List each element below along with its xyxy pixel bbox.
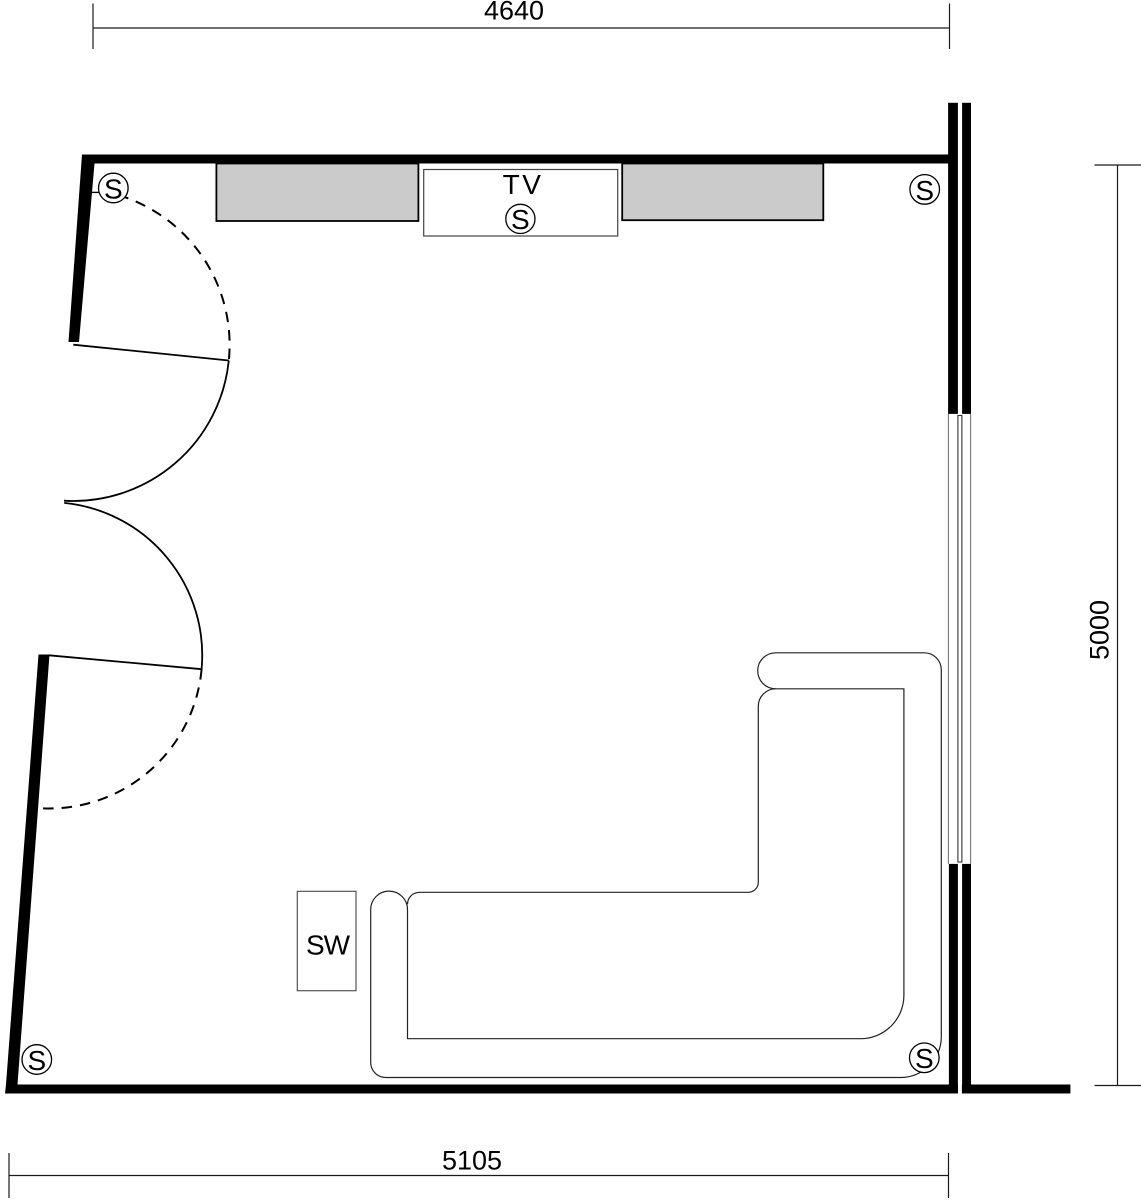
- svg-text:S: S: [915, 175, 934, 206]
- svg-text:S: S: [511, 204, 530, 235]
- svg-text:5000: 5000: [1085, 600, 1115, 660]
- svg-text:4640: 4640: [484, 0, 544, 26]
- svg-text:S: S: [104, 173, 123, 204]
- svg-text:5105: 5105: [442, 1146, 502, 1176]
- svg-text:SW: SW: [306, 930, 351, 961]
- svg-text:S: S: [915, 1043, 934, 1074]
- svg-text:S: S: [27, 1045, 46, 1076]
- svg-text:TV: TV: [503, 169, 544, 200]
